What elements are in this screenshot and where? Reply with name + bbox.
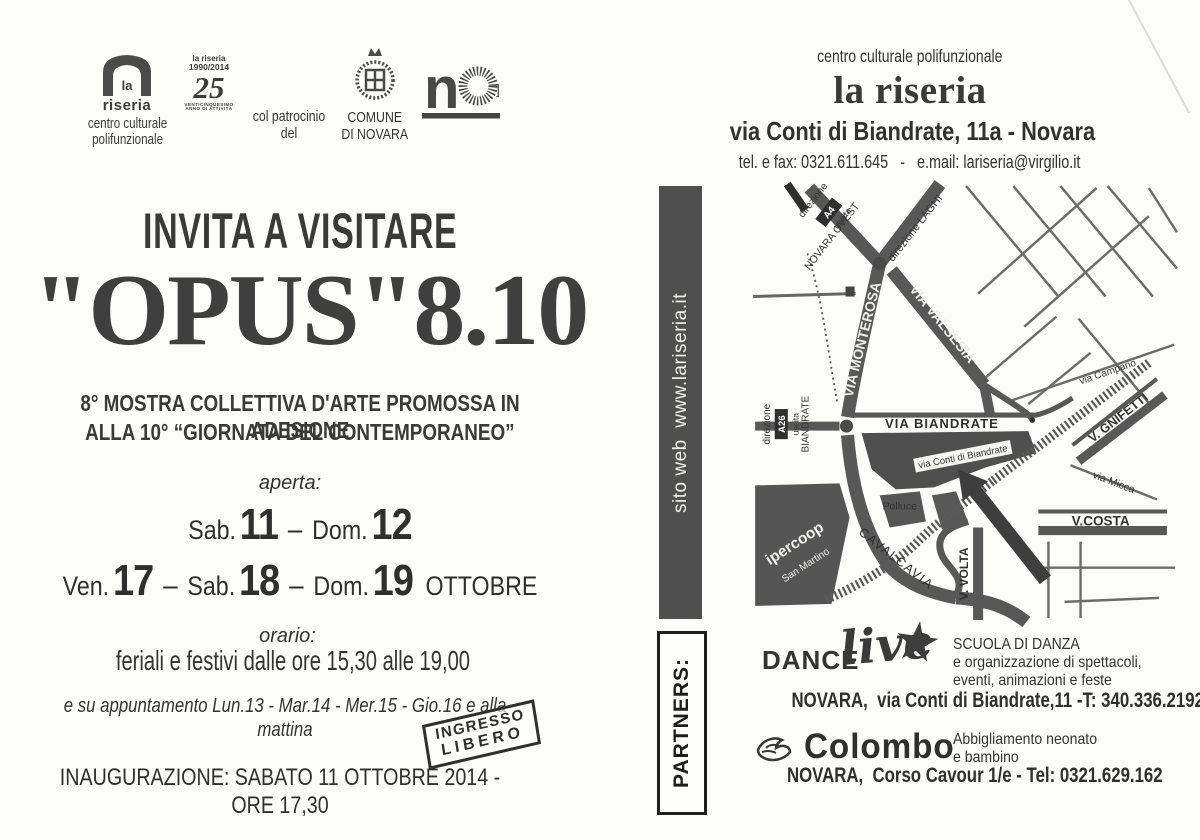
map-label-a26: A26 [777, 415, 788, 433]
map-label-v-volta: V. VOLTA [957, 547, 971, 600]
date-day: Ven. [63, 571, 109, 601]
partners-label: PARTNERS: [670, 658, 694, 788]
right-panel: centro culturale polifunzionale la riser… [630, 0, 1200, 840]
map-label-biandrate-exit: BIANDRATE [800, 395, 811, 452]
map-label-direzione-a26: direzione [762, 403, 773, 444]
dates-row-1: Sab. 11 – Dom. 12 [0, 500, 600, 550]
n-logo-caption-bar [422, 113, 500, 119]
open-label: aperta: [0, 472, 580, 495]
riseria-logo-la: la [122, 78, 134, 93]
map-west-road [753, 294, 855, 297]
partners-sidebar: PARTNERS: [657, 631, 707, 815]
colombo-description: Abbigliamento neonato e bambino [953, 731, 1173, 767]
comune-novara-caption: COMUNEDI NOVARA [328, 110, 422, 144]
dates-row-2: Ven. 17 – Sab. 18 – Dom. 19 OTTOBRE [0, 556, 600, 606]
date-separator: – [288, 513, 302, 546]
map-label-polluce: Polluce [882, 500, 917, 512]
date-number: 19 [373, 556, 413, 605]
venue-brand: la riseria [695, 68, 1125, 113]
street-map: via Conti di Biandrate direzione A4 usci… [718, 168, 1188, 630]
riseria-logo-caption: centro culturalepolifunzionale [66, 116, 190, 148]
riseria-arch-logo: la riseria [96, 50, 158, 114]
map-label-via-biandrate: VIA BIANDRATE [885, 416, 999, 431]
date-day: Dom. [312, 515, 367, 545]
n-logo-dotted-ring-icon [463, 71, 493, 101]
comune-novara-crest [348, 44, 402, 108]
date-number: 11 [240, 500, 278, 549]
exhibition-title: "OPUS"8.10 [0, 252, 620, 369]
n-logo-bracket: ] [496, 81, 500, 97]
colombo-brand: Colombo [800, 727, 959, 767]
venue-address: via Conti di Biandrate, 11a - Novara [695, 116, 1125, 147]
date-day: Sab. [188, 515, 236, 545]
n-logo: n ] [420, 56, 504, 122]
dance-address: NOVARA, via Conti di Biandrate,11 -T: 34… [740, 689, 1190, 713]
dance-description: SCUOLA DI DANZA e organizzazione di spet… [953, 636, 1183, 690]
map-dotted-boundary [807, 253, 837, 404]
map-a26-badge: A26 [775, 409, 788, 439]
map-arrow [958, 469, 1051, 584]
anniversary-caption-2: ANNO DI ATTIVITÀ [182, 107, 236, 112]
venue-header: centro culturale polifunzionale la riser… [695, 46, 1125, 173]
venue-tagline: centro culturale polifunzionale [695, 46, 1125, 67]
colombo-address: NOVARA, Corso Cavour 1/e - Tel: 0321.629… [740, 764, 1190, 788]
map-roundabout-north [873, 257, 886, 270]
date-number: 12 [371, 500, 411, 549]
date-month: OTTOBRE [426, 571, 538, 601]
map-label-via-campano: via Campano [1078, 358, 1138, 388]
date-separator: – [163, 569, 177, 602]
map-node-dot [1030, 417, 1036, 423]
subtitle-line-2: ALLA 10° “GIORNATA DEL CONTEMPORANEO” [0, 419, 600, 446]
scanned-flyer: { "page": {"ink": "#383838", "bar_bg": "… [0, 0, 1200, 840]
date-number: 18 [239, 556, 279, 605]
left-panel: la riseria centro culturalepolifunzional… [0, 0, 630, 840]
map-label-via-valsesia: VIA VALSESIA [906, 281, 979, 366]
inauguration-text: INAUGURAZIONE: SABATO 11 OTTOBRE 2014 - … [0, 764, 560, 820]
map-label-uscita-biandrate: uscita [790, 413, 800, 436]
crown-icon [368, 48, 382, 56]
map-label-v-costa: V.COSTA [1072, 514, 1130, 529]
hours-text: feriali e festivi dalle ore 15,30 alle 1… [0, 645, 585, 677]
map-small-building [846, 287, 855, 297]
n-logo-letter: n [424, 56, 459, 121]
anniversary-25-logo: la riseria 1990/2014 25 VENTICINQUESIMO … [182, 55, 236, 112]
anniversary-number: 25 [182, 72, 236, 103]
website-sidebar: sito web www.lariseria.it [659, 186, 702, 619]
map-label-via-monterosa: VIA MONTEROSA [840, 280, 884, 398]
map-roundabout-south [840, 420, 853, 433]
date-separator: – [289, 569, 303, 602]
map-label-via-micca: via Micca [1091, 469, 1136, 496]
date-number: 17 [113, 556, 153, 605]
date-day: Dom. [313, 571, 368, 601]
date-day: Sab. [187, 571, 235, 601]
riseria-logo-name: riseria [103, 97, 152, 114]
website-url: sito web www.lariseria.it [670, 293, 692, 513]
map-label-direzione-laghi: direzione LAGHI [886, 193, 945, 264]
star-icon: ★ [889, 607, 946, 676]
